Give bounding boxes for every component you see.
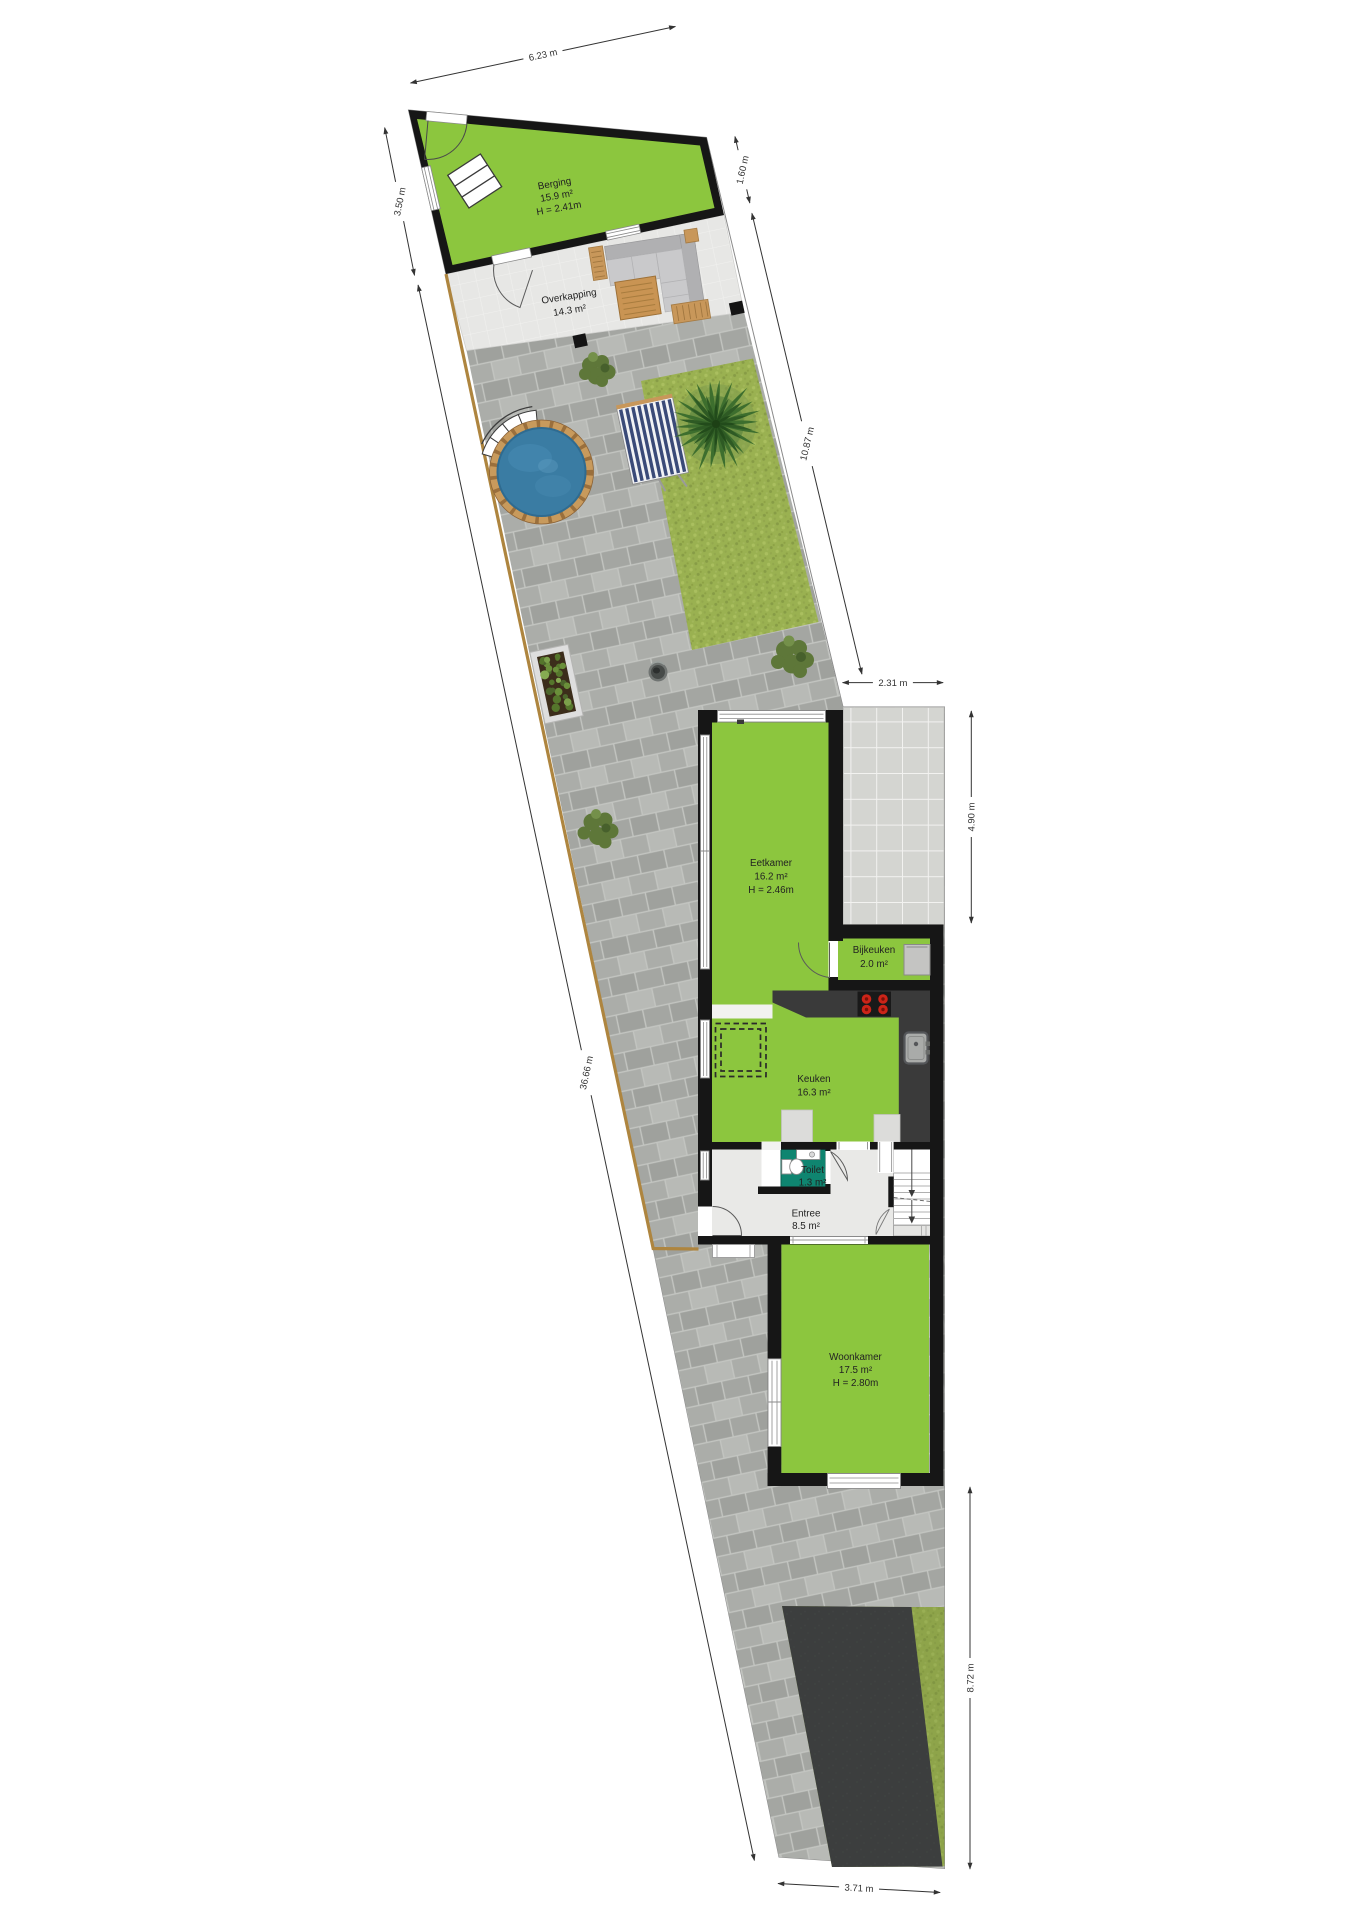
- svg-text:8.72 m: 8.72 m: [965, 1663, 976, 1692]
- svg-text:8.5 m²: 8.5 m²: [792, 1221, 821, 1232]
- svg-text:Eetkamer: Eetkamer: [750, 858, 793, 869]
- svg-text:Woonkamer: Woonkamer: [829, 1352, 882, 1363]
- svg-text:16.3 m²: 16.3 m²: [797, 1088, 831, 1099]
- svg-text:1.3 m²: 1.3 m²: [799, 1178, 828, 1189]
- svg-text:Entree: Entree: [792, 1209, 821, 1220]
- svg-text:2.31 m: 2.31 m: [878, 678, 907, 689]
- svg-text:3.71 m: 3.71 m: [844, 1883, 874, 1896]
- svg-text:Toilet: Toilet: [801, 1165, 824, 1176]
- svg-text:Keuken: Keuken: [797, 1074, 830, 1085]
- svg-text:16.2 m²: 16.2 m²: [754, 872, 788, 883]
- svg-text:17.5 m²: 17.5 m²: [839, 1365, 873, 1376]
- svg-text:2.0 m²: 2.0 m²: [860, 959, 889, 970]
- svg-text:Bijkeuken: Bijkeuken: [853, 945, 895, 956]
- svg-text:4.90 m: 4.90 m: [967, 802, 978, 831]
- svg-text:H = 2.80m: H = 2.80m: [833, 1378, 878, 1389]
- svg-text:H = 2.46m: H = 2.46m: [748, 885, 793, 896]
